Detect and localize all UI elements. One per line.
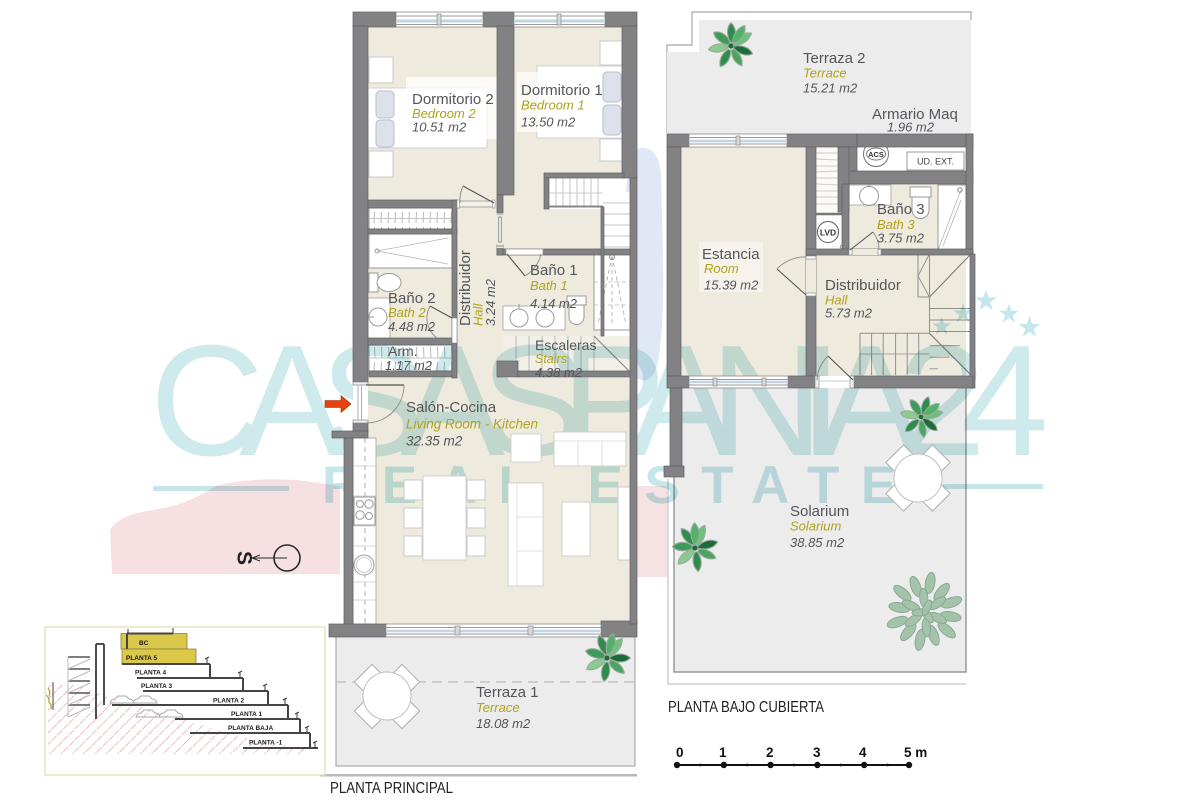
svg-text:Living Room - Kitchen: Living Room - Kitchen <box>406 417 538 432</box>
svg-text:4: 4 <box>859 745 867 760</box>
svg-text:Bath 2: Bath 2 <box>388 305 426 320</box>
svg-text:Room: Room <box>704 261 739 276</box>
svg-text:LVD: LVD <box>820 228 836 238</box>
svg-text:PLANTA -1: PLANTA -1 <box>249 740 283 747</box>
svg-text:PLANTA 5: PLANTA 5 <box>126 655 157 662</box>
svg-text:PLANTA BAJO CUBIERTA: PLANTA BAJO CUBIERTA <box>668 699 825 716</box>
svg-text:Solarium: Solarium <box>790 519 841 534</box>
svg-text:5 m: 5 m <box>904 745 927 760</box>
svg-text:Stairs: Stairs <box>535 352 567 366</box>
svg-text:Terraza 1: Terraza 1 <box>476 684 539 701</box>
svg-text:18.08 m2: 18.08 m2 <box>476 716 531 731</box>
svg-text:Arm.: Arm. <box>388 343 418 359</box>
svg-text:3: 3 <box>813 745 821 760</box>
svg-text:PLANTA 3: PLANTA 3 <box>141 683 172 690</box>
svg-text:S: S <box>233 551 256 565</box>
svg-text:Terraza 2: Terraza 2 <box>803 50 866 67</box>
svg-text:10.51 m2: 10.51 m2 <box>412 120 467 135</box>
svg-text:3.75 m2: 3.75 m2 <box>877 231 925 246</box>
svg-text:Bath 1: Bath 1 <box>530 278 568 293</box>
svg-text:PLANTA BAJA: PLANTA BAJA <box>228 725 273 732</box>
svg-text:Baño 3: Baño 3 <box>877 201 925 218</box>
svg-text:4.48 m2: 4.48 m2 <box>388 319 436 334</box>
svg-text:Solarium: Solarium <box>790 503 849 520</box>
svg-text:15.39 m2: 15.39 m2 <box>704 278 759 293</box>
svg-text:PLANTA PRINCIPAL: PLANTA PRINCIPAL <box>330 780 453 797</box>
svg-text:BC: BC <box>139 640 149 647</box>
svg-text:Terrace: Terrace <box>803 66 847 81</box>
svg-text:PLANTA 4: PLANTA 4 <box>135 670 166 677</box>
svg-text:4.38 m2: 4.38 m2 <box>535 365 583 380</box>
svg-text:PLANTA 1: PLANTA 1 <box>231 711 262 718</box>
svg-text:1: 1 <box>719 745 727 760</box>
svg-text:Terrace: Terrace <box>476 700 520 715</box>
svg-text:UD. EXT.: UD. EXT. <box>917 157 954 167</box>
svg-text:Distribuidor: Distribuidor <box>825 277 901 294</box>
svg-text:38.85 m2: 38.85 m2 <box>790 535 845 550</box>
svg-text:Bedroom 1: Bedroom 1 <box>521 98 585 113</box>
svg-text:ACS: ACS <box>868 150 884 159</box>
svg-text:13.50 m2: 13.50 m2 <box>521 115 576 130</box>
svg-text:1.96 m2: 1.96 m2 <box>887 120 935 135</box>
svg-text:2: 2 <box>766 745 774 760</box>
svg-text:0: 0 <box>676 745 684 760</box>
svg-text:Escaleras: Escaleras <box>535 337 596 353</box>
svg-text:4.14 m2: 4.14 m2 <box>530 296 578 311</box>
svg-text:PLANTA 2: PLANTA 2 <box>213 698 244 705</box>
svg-text:32.35 m2: 32.35 m2 <box>406 434 463 449</box>
svg-text:1.17 m2: 1.17 m2 <box>385 358 433 373</box>
svg-text:Salón-Cocina: Salón-Cocina <box>406 399 497 416</box>
svg-text:Baño 1: Baño 1 <box>530 262 578 279</box>
svg-text:15.21 m2: 15.21 m2 <box>803 81 858 96</box>
svg-text:5.73 m2: 5.73 m2 <box>825 306 873 321</box>
svg-text:Dormitorio 1: Dormitorio 1 <box>521 82 603 99</box>
svg-text:3.24 m2: 3.24 m2 <box>483 278 498 326</box>
